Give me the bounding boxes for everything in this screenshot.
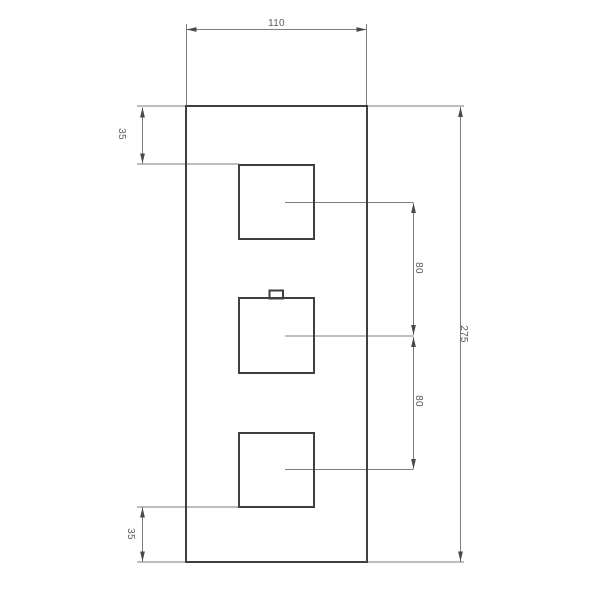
dim-label-bottom-offset: 35 [125,528,136,540]
dim-label-upper-spacing: 80 [413,262,424,274]
dimension-labels: 110 275 35 80 80 35 [116,18,469,540]
object-outlines [186,106,367,562]
dim-label-height: 275 [458,325,469,343]
technical-drawing: 110 275 35 80 80 35 [0,0,600,600]
valve-plate-outline [186,106,367,562]
dim-label-lower-spacing: 80 [413,395,424,407]
drawing-canvas: 110 275 35 80 80 35 [0,0,600,600]
dim-label-top-offset: 35 [116,128,127,140]
dim-label-width: 110 [268,18,285,29]
